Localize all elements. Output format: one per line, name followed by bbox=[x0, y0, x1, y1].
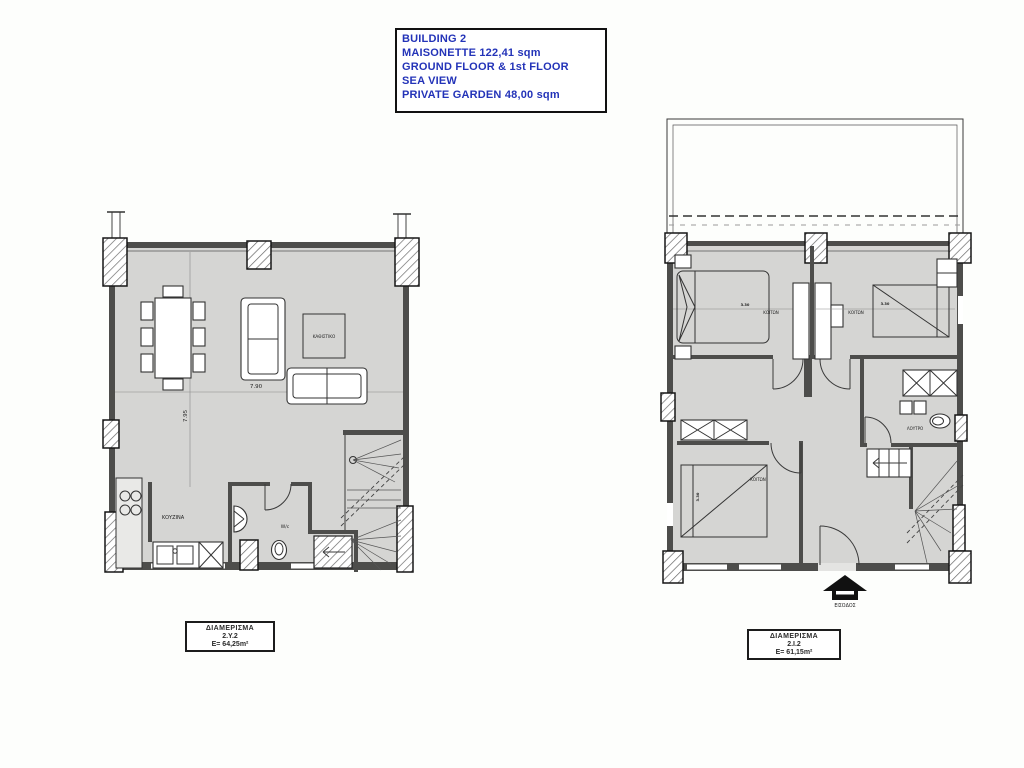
gf-dim-height: 7.95 bbox=[183, 409, 189, 422]
ff-apartment-title: ΔΙΑΜΕΡΙΣΜΑ bbox=[752, 633, 836, 640]
gf-floor-area bbox=[109, 244, 409, 570]
ff-label-bedroom1: ΚΟΙΤΩΝ bbox=[763, 310, 778, 315]
ff-label-bedroom3: ΚΟΙΤΩΝ bbox=[750, 477, 765, 482]
gf-label-kitchen: ΚΟΥΖΙΝΑ bbox=[162, 515, 185, 521]
gf-sofa-vertical bbox=[241, 298, 285, 380]
ff-window-bottom3 bbox=[895, 565, 929, 570]
title-line-building: BUILDING 2 bbox=[402, 33, 600, 47]
ff-window-bottom1 bbox=[687, 565, 727, 570]
ff-window-right bbox=[958, 296, 963, 324]
ff-window-left bbox=[667, 503, 673, 526]
title-line-type: MAISONETTE 122,41 sqm bbox=[402, 47, 600, 61]
ff-label-entrance: ΕΙΣΟΔΟΣ bbox=[834, 603, 855, 609]
ff-entrance-opening bbox=[818, 563, 856, 571]
gf-apartment-code: 2.Υ.2 bbox=[190, 633, 270, 640]
gf-label-wc: W/c bbox=[281, 524, 290, 530]
ff-dim-bed3: 3.30 bbox=[696, 492, 700, 501]
title-line-view: SEA VIEW bbox=[402, 75, 600, 89]
gf-label-living: ΚΑΘΙΣΤΙΚΟ bbox=[313, 334, 336, 339]
gf-apartment-label-box: ΔΙΑΜΕΡΙΣΜΑ 2.Υ.2 E= 64,25m² bbox=[185, 621, 275, 652]
title-block: BUILDING 2 MAISONETTE 122,41 sqm GROUND … bbox=[395, 28, 607, 113]
ff-window-bottom2 bbox=[739, 565, 781, 570]
title-line-garden: PRIVATE GARDEN 48,00 sqm bbox=[402, 89, 600, 103]
ground-floor-plan: 7.90 7.95 ΚΑΘΙΣΤΙΚΟ bbox=[95, 200, 425, 590]
gf-apartment-title: ΔΙΑΜΕΡΙΣΜΑ bbox=[190, 625, 270, 632]
gf-sofa-horizontal bbox=[287, 368, 367, 404]
ff-label-bathroom: ΛΟΥΤΡΟ bbox=[907, 426, 923, 431]
ff-apartment-area: E= 61,15m² bbox=[752, 649, 836, 656]
ff-label-bedroom2: ΚΟΙΤΩΝ bbox=[848, 310, 863, 315]
gf-storage-closet bbox=[308, 530, 358, 572]
ff-balcony bbox=[667, 119, 963, 239]
ff-entrance-arrow: ΕΙΣΟΔΟΣ bbox=[823, 575, 867, 609]
ff-dim-bed2: 3.30 bbox=[881, 302, 890, 306]
gf-dim-width: 7.90 bbox=[250, 384, 263, 390]
ff-apartment-label-box: ΔΙΑΜΕΡΙΣΜΑ 2.Ι.2 E= 61,15m² bbox=[747, 629, 841, 660]
ff-dim-bed1: 3.30 bbox=[741, 303, 750, 307]
gf-top-wall-stubs bbox=[107, 212, 411, 242]
first-floor-plan: ΚΟΙΤΩΝ 3.30 ΚΟΙΤΩΝ 3.30 bbox=[655, 113, 975, 618]
floorplan-sheet: BUILDING 2 MAISONETTE 122,41 sqm GROUND … bbox=[0, 0, 1024, 768]
title-line-floors: GROUND FLOOR & 1st FLOOR bbox=[402, 61, 600, 75]
gf-apartment-area: E= 64,25m² bbox=[190, 641, 270, 648]
ff-apartment-code: 2.Ι.2 bbox=[752, 641, 836, 648]
